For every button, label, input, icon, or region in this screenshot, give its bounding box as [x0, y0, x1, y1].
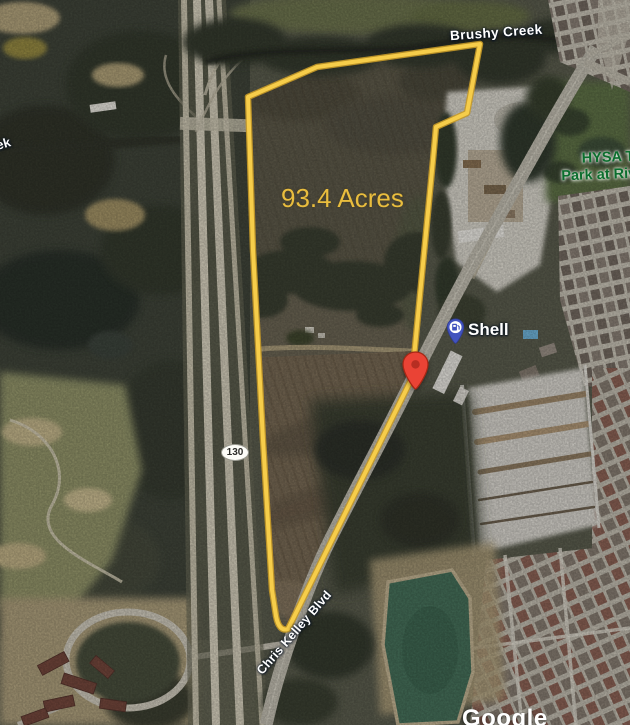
red-marker-dot — [411, 360, 420, 369]
highway-130-shield: 130 — [221, 444, 249, 461]
satellite-map-canvas[interactable]: Brushy Creek ek 93.4 Acres HYSA T Park a… — [0, 0, 630, 725]
noise-overlay — [0, 0, 630, 725]
red-marker-shape — [403, 352, 428, 389]
satellite-imagery — [0, 0, 630, 725]
